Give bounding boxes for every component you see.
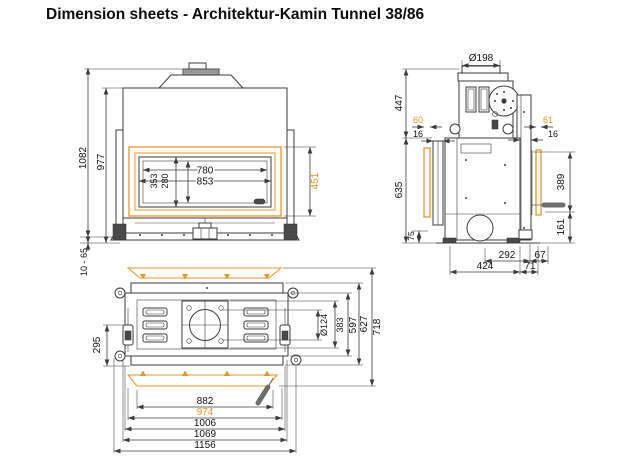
dim-plan-body-width: 1006 [194,418,217,429]
dim-plan-flue-diameter: Ø124 [319,314,329,336]
dim-front-door-width: 853 [197,177,214,188]
flue-flange [183,69,219,75]
dim-front-frame-height: 451 [310,172,321,189]
orange-frame-front [424,148,430,217]
door-latch [254,199,265,204]
technical-drawing: 1082 977 10 - 65 780 853 353 280 [0,0,624,460]
side-view: Ø198 447 635 60 16 75 [394,53,575,275]
dim-plan-outer-width: 1069 [194,429,217,440]
dim-plan-latch-offset: 295 [92,336,103,353]
front-roller [450,124,460,134]
cold-hand-tool [258,387,268,403]
damper-linkage [492,120,498,129]
dim-plan-opening-depth: 383 [335,317,345,332]
bottom-bar [131,356,283,365]
flue-collar-top [189,63,206,69]
dim-side-front-depth: 71 [524,261,536,272]
dim-plan-total-width: 1156 [194,440,216,451]
dim-side-frame-depth-right: 61 [543,115,553,125]
dim-side-flue-diameter: Ø198 [469,53,494,64]
dim-side-upper-height: 447 [394,94,405,111]
front-view: 1082 977 10 - 65 780 853 353 280 [78,63,321,276]
dim-front-total-height: 1082 [78,146,89,169]
convection-opening [467,215,493,241]
orange-frame-bottom [128,375,277,386]
dim-side-lower-height: 161 [556,218,567,235]
side-front-foot [443,238,456,243]
dim-plan-total-depth: 718 [372,318,383,335]
dim-side-handle-height: 389 [556,173,567,190]
side-structure [424,66,563,243]
plan-body-outline [125,293,288,356]
dim-side-rear-depth: 67 [534,250,546,261]
dim-front-feet-range: 10 - 65 [79,248,89,276]
damper-hub [501,98,506,103]
plan-structure [115,268,301,403]
dim-front-body-height: 977 [96,153,107,170]
front-structure [84,63,299,240]
flue-plate [458,73,508,81]
dim-front-door-height: 353 [149,173,159,188]
center-bracket [193,228,217,239]
dim-front-glass-width: 780 [197,166,214,177]
right-pillar [287,130,294,228]
dimension-sheet-page: Dimension sheets - Architektur-Kamin Tun… [0,0,624,460]
dim-side-base-height: 75 [406,231,416,241]
dim-side-gap-left: 16 [413,129,423,139]
dim-side-frame-depth-left: 60 [413,115,423,125]
dim-plan-frame-width: 974 [197,407,214,418]
dim-side-gap-right: 16 [548,129,558,139]
left-pillar [116,130,123,228]
dim-side-body-depth: 424 [477,261,494,272]
dim-side-inner-depth: 292 [499,250,516,261]
flue-hood [159,75,243,88]
side-rear-foot [507,238,520,243]
dim-plan-inner-width: 882 [197,396,214,407]
left-foot [113,224,126,240]
dim-side-body-height: 635 [394,181,405,198]
plan-view: 295 Ø124 383 597 627 [92,268,383,453]
rear-bracket [519,230,532,239]
dim-plan-inner-depth: 597 [348,316,359,333]
dim-front-glass-height: 280 [160,173,170,188]
rear-roller [503,124,513,134]
flue-pipe [462,66,500,73]
orange-frame-top [128,268,281,278]
right-foot [284,224,297,240]
dim-plan-body-depth: 627 [359,315,370,332]
